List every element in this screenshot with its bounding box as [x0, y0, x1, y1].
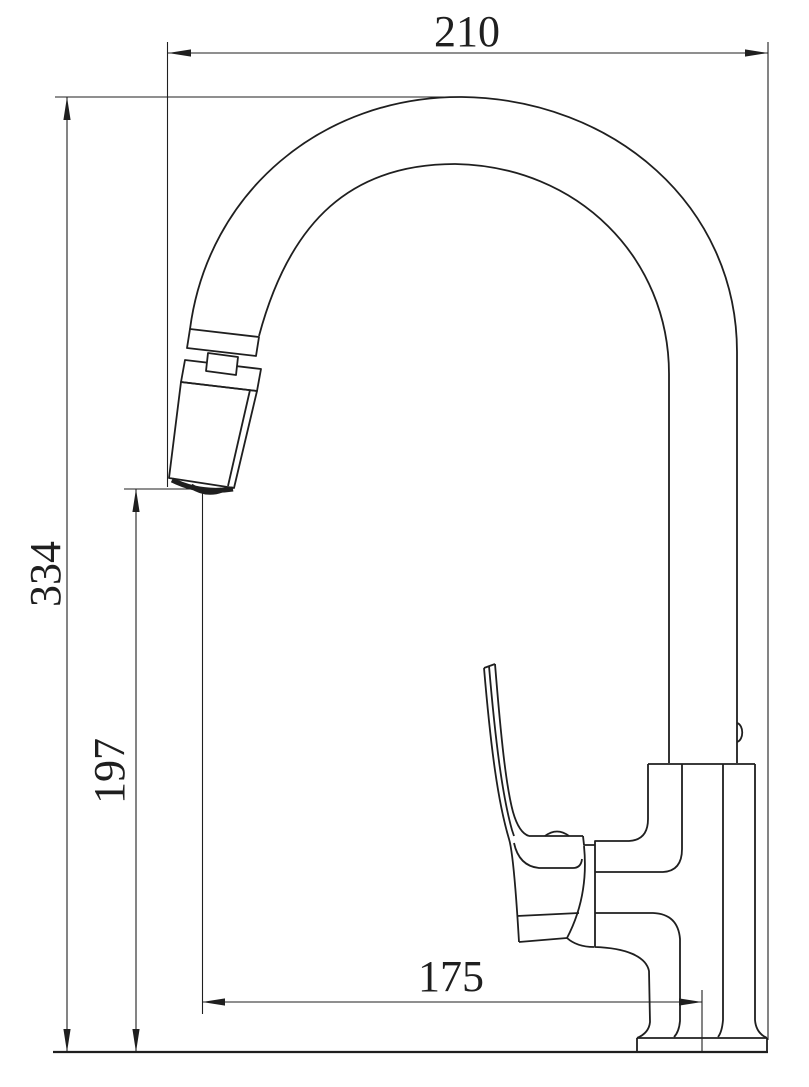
arrowhead-down	[63, 1029, 70, 1052]
dim-334-label: 334	[21, 541, 70, 607]
arrowhead-left	[168, 49, 191, 56]
dimension-175: 175	[202, 952, 702, 1006]
arrowhead-up	[63, 97, 70, 120]
faucet-body	[595, 764, 767, 1038]
spray-head-body	[169, 382, 257, 488]
dim-197-label: 197	[85, 738, 134, 804]
spray-head-neck-notch	[206, 353, 238, 375]
spout-arc	[190, 97, 742, 763]
body-front-profile	[595, 764, 650, 1038]
body-shoulder-line	[595, 764, 682, 872]
arrowhead-up	[132, 489, 139, 512]
dimension-210: 210	[168, 7, 768, 57]
drawing-svg: 210 334 197 175	[0, 0, 809, 1087]
dim-210-label: 210	[434, 7, 500, 56]
spout-inner-curve	[259, 164, 669, 763]
dim-175-label: 175	[418, 952, 484, 1001]
body-inner-profile	[595, 913, 680, 1037]
dimension-197: 197	[85, 489, 140, 1052]
dimension-334: 334	[21, 97, 71, 1052]
lever-cross-line	[517, 913, 579, 916]
extension-lines	[55, 42, 768, 1052]
arrowhead-right	[679, 998, 702, 1005]
spray-head-ring-upper	[187, 329, 259, 356]
arrowhead-down	[132, 1029, 139, 1052]
lever-front-edge	[484, 668, 519, 942]
lever-back-edge	[495, 664, 529, 836]
lever-foot-connector	[567, 938, 594, 947]
arrowhead-right	[745, 49, 768, 56]
body-rear-inner-line	[718, 764, 723, 1037]
lever-base-step	[583, 836, 595, 845]
arrowhead-left	[202, 998, 225, 1005]
faucet-outline	[169, 97, 767, 1051]
lever-base-underside	[514, 843, 582, 868]
handle-lever	[484, 664, 595, 947]
body-right-edge	[755, 764, 767, 1038]
spray-head	[169, 329, 261, 492]
lever-foot-bottom	[519, 938, 567, 942]
faucet-technical-drawing: 210 334 197 175	[0, 0, 809, 1087]
spout-outer-curve	[190, 97, 737, 763]
